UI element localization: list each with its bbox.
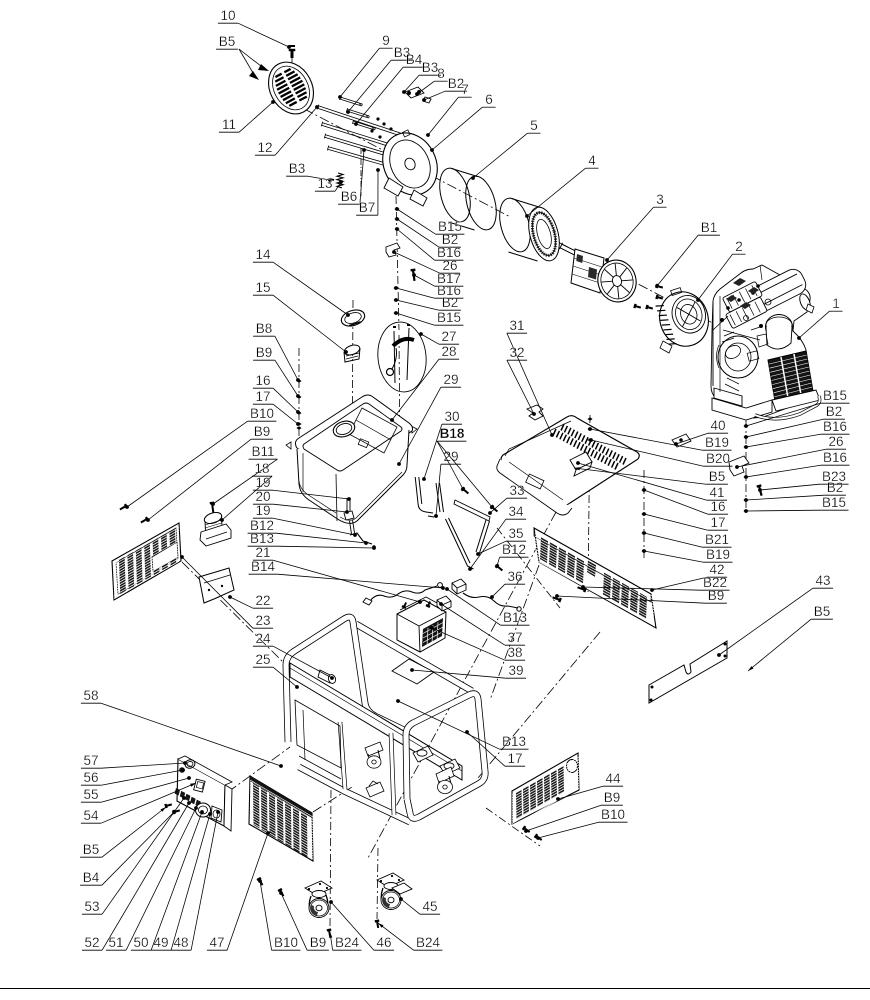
svg-text:46: 46 (376, 935, 391, 950)
svg-text:12: 12 (257, 140, 272, 155)
svg-text:31: 31 (509, 318, 524, 333)
svg-text:4: 4 (588, 153, 596, 168)
svg-text:30: 30 (444, 409, 459, 424)
svg-text:16: 16 (255, 373, 270, 388)
svg-text:38: 38 (507, 645, 522, 660)
svg-text:B10: B10 (274, 935, 298, 950)
svg-text:43: 43 (815, 573, 830, 588)
svg-text:B15: B15 (823, 388, 847, 403)
svg-text:28: 28 (441, 344, 456, 359)
svg-text:9: 9 (382, 33, 390, 48)
svg-text:54: 54 (83, 808, 99, 823)
svg-text:B5: B5 (219, 34, 236, 49)
svg-text:19: 19 (255, 503, 270, 518)
svg-text:B5: B5 (83, 842, 100, 857)
svg-text:B13: B13 (250, 531, 274, 546)
svg-text:49: 49 (153, 935, 168, 950)
svg-text:B15: B15 (437, 310, 461, 325)
svg-text:48: 48 (173, 935, 188, 950)
svg-text:B16: B16 (823, 419, 847, 434)
svg-text:41: 41 (709, 485, 724, 500)
svg-text:B19: B19 (706, 547, 730, 562)
svg-text:B5: B5 (814, 604, 831, 619)
svg-text:21: 21 (255, 545, 270, 560)
svg-text:14: 14 (255, 247, 271, 262)
svg-text:B21: B21 (705, 532, 729, 547)
svg-text:26: 26 (828, 434, 843, 449)
svg-text:44: 44 (605, 771, 621, 786)
svg-text:2: 2 (735, 239, 743, 254)
svg-text:B9: B9 (310, 935, 327, 950)
svg-text:B8: B8 (256, 321, 273, 336)
svg-text:27: 27 (441, 329, 456, 344)
svg-text:20: 20 (255, 489, 270, 504)
svg-text:17: 17 (710, 515, 725, 530)
svg-text:B9: B9 (256, 345, 273, 360)
svg-text:24: 24 (255, 631, 271, 646)
svg-text:23: 23 (255, 613, 270, 628)
svg-text:B14: B14 (251, 559, 276, 574)
svg-text:22: 22 (255, 593, 270, 608)
svg-text:B3: B3 (289, 161, 306, 176)
svg-text:B5: B5 (709, 469, 726, 484)
svg-text:B12: B12 (502, 542, 526, 557)
svg-text:B9: B9 (254, 424, 271, 439)
svg-text:B9: B9 (604, 790, 621, 805)
svg-text:19: 19 (255, 475, 270, 490)
svg-text:40: 40 (710, 418, 725, 433)
svg-text:33: 33 (509, 483, 524, 498)
svg-text:50: 50 (133, 935, 148, 950)
svg-text:7: 7 (461, 82, 469, 97)
svg-text:B13: B13 (502, 734, 526, 749)
svg-text:17: 17 (255, 389, 270, 404)
svg-text:B18: B18 (440, 426, 465, 441)
svg-text:8: 8 (437, 66, 445, 81)
svg-text:B10: B10 (250, 406, 274, 421)
svg-text:B2: B2 (827, 480, 844, 495)
svg-text:B11: B11 (251, 444, 274, 459)
svg-text:3: 3 (656, 192, 664, 207)
svg-text:18: 18 (254, 461, 269, 476)
svg-text:B24: B24 (416, 935, 441, 950)
svg-text:B13: B13 (503, 610, 527, 625)
svg-text:13: 13 (317, 176, 332, 191)
svg-text:10: 10 (220, 8, 235, 23)
svg-text:B2: B2 (826, 404, 843, 419)
svg-text:37: 37 (507, 630, 522, 645)
svg-text:1: 1 (832, 296, 840, 311)
svg-text:36: 36 (507, 569, 522, 584)
svg-text:17: 17 (507, 751, 522, 766)
svg-text:B1: B1 (701, 220, 718, 235)
svg-text:B10: B10 (601, 807, 625, 822)
svg-text:B15: B15 (822, 495, 846, 510)
svg-text:39: 39 (508, 663, 523, 678)
svg-text:B20: B20 (706, 451, 730, 466)
svg-text:11: 11 (222, 117, 236, 132)
svg-text:16: 16 (710, 499, 725, 514)
svg-text:47: 47 (209, 935, 224, 950)
svg-text:B7: B7 (359, 200, 376, 215)
svg-text:29: 29 (443, 372, 458, 387)
svg-text:25: 25 (255, 652, 270, 667)
svg-text:57: 57 (83, 753, 98, 768)
svg-text:B4: B4 (83, 870, 100, 885)
svg-text:32: 32 (509, 345, 524, 360)
svg-text:45: 45 (422, 899, 437, 914)
svg-text:B16: B16 (823, 450, 847, 465)
svg-text:5: 5 (530, 118, 538, 133)
svg-text:35: 35 (508, 526, 523, 541)
svg-text:B24: B24 (335, 935, 360, 950)
svg-text:52: 52 (84, 935, 99, 950)
svg-text:53: 53 (84, 899, 99, 914)
svg-text:51: 51 (108, 935, 123, 950)
svg-text:58: 58 (83, 688, 98, 703)
svg-text:B2: B2 (442, 295, 459, 310)
svg-text:B6: B6 (341, 189, 358, 204)
svg-text:B19: B19 (705, 435, 729, 450)
svg-text:56: 56 (83, 770, 98, 785)
svg-text:34: 34 (508, 504, 524, 519)
svg-text:15: 15 (255, 280, 270, 295)
svg-text:B9: B9 (708, 588, 725, 603)
svg-text:B4: B4 (406, 52, 423, 67)
svg-text:6: 6 (485, 92, 493, 107)
svg-text:B3: B3 (422, 60, 439, 75)
svg-text:55: 55 (83, 787, 98, 802)
